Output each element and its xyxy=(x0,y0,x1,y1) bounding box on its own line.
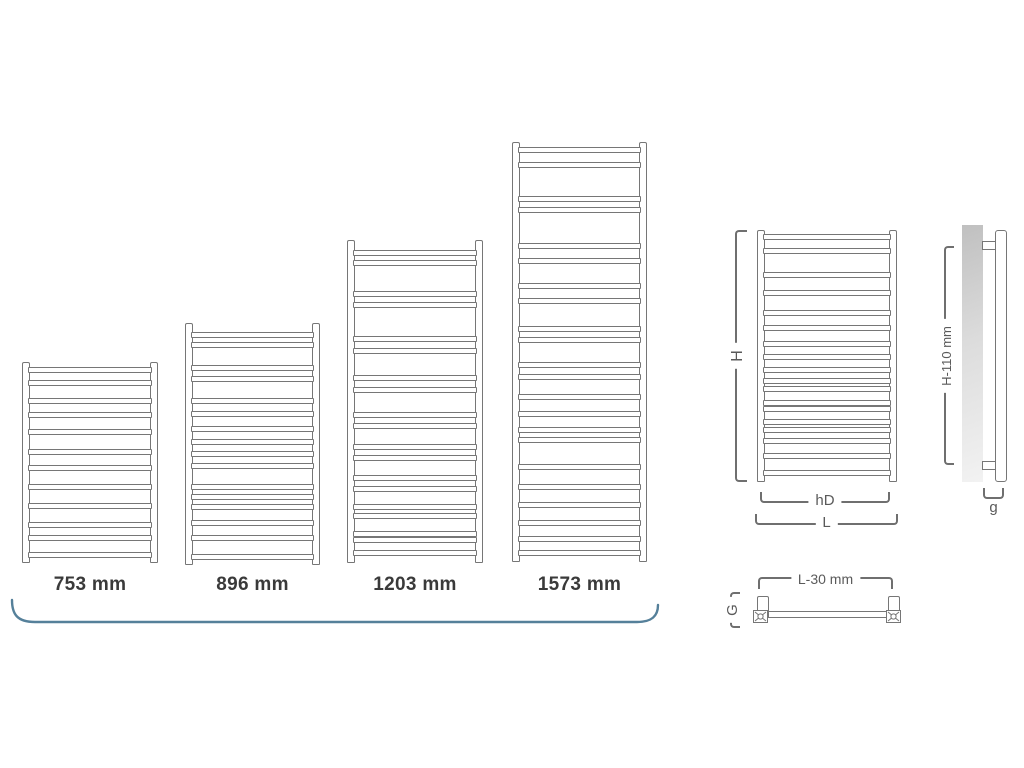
radiator-rung xyxy=(518,484,641,490)
mount-cross-icon xyxy=(754,611,767,622)
radiator-rung xyxy=(28,503,152,509)
radiator-rung xyxy=(518,550,641,556)
radiator-rung xyxy=(518,502,641,508)
radiator-rung xyxy=(763,367,891,373)
radiator-rung xyxy=(763,325,891,331)
radiator-rung xyxy=(518,520,641,526)
radiator-rung xyxy=(353,250,477,256)
radiator-rung xyxy=(191,398,314,404)
radiator-rung xyxy=(763,470,891,476)
radiator-rung xyxy=(763,419,891,425)
radiator-rung xyxy=(353,455,477,461)
top-view-mount-bracket-left xyxy=(753,610,768,623)
radiator-rung xyxy=(28,522,152,528)
radiator-rung xyxy=(191,332,314,338)
radiator-rung xyxy=(353,513,477,519)
radiator-rung xyxy=(518,374,641,380)
radiator-rung xyxy=(518,427,641,433)
top-view-crossbar xyxy=(768,611,889,618)
radiator-rung xyxy=(28,412,152,418)
radiator-rung xyxy=(518,464,641,470)
radiator-rung xyxy=(518,394,641,400)
radiator-rung xyxy=(763,427,891,433)
radiator-size-variant xyxy=(347,240,483,563)
dimension-inner-width-bracket: hD xyxy=(760,492,890,503)
radiator-rung xyxy=(28,398,152,404)
mount-cross-icon xyxy=(887,611,900,622)
side-view-collector-tube xyxy=(995,230,1007,482)
radiator-rung xyxy=(518,147,641,153)
radiator-rung xyxy=(191,365,314,371)
size-group-underline-curve xyxy=(8,595,668,631)
radiator-rung xyxy=(28,552,152,558)
dimension-top-depth-label: G xyxy=(725,597,741,623)
radiator-rail-right xyxy=(150,362,158,563)
radiator-height-label: 1203 mm xyxy=(373,574,456,596)
radiator-rung xyxy=(353,537,477,543)
dimension-side-depth-bracket: g xyxy=(983,488,1004,499)
radiator-rail-left xyxy=(22,362,30,563)
dimension-height-bracket: H xyxy=(735,230,747,482)
radiator-size-variant xyxy=(512,142,647,562)
radiator-rung xyxy=(191,463,314,469)
radiator-rung xyxy=(763,234,891,240)
radiator-rung xyxy=(763,310,891,316)
radiator-rung xyxy=(353,423,477,429)
radiator-height-label: 896 mm xyxy=(216,574,289,596)
radiator-rung xyxy=(28,535,152,541)
dimension-side-height-bracket: H-110 mm xyxy=(944,246,954,465)
radiator-rung xyxy=(191,484,314,490)
radiator-rung xyxy=(191,426,314,432)
dimension-top-width-label: L-30 mm xyxy=(791,571,860,587)
radiator-rung xyxy=(518,362,641,368)
dimension-top-width-bracket: L-30 mm xyxy=(758,577,893,589)
dimension-height-label: H xyxy=(730,343,746,369)
radiator-rung xyxy=(28,380,152,386)
radiator-rung xyxy=(353,375,477,381)
radiator-rung xyxy=(518,536,641,542)
radiator-height-label: 753 mm xyxy=(54,574,127,596)
dimension-top-depth-bracket: G xyxy=(730,592,740,628)
radiator-rung xyxy=(353,291,477,297)
radiator-rung xyxy=(518,258,641,264)
dimension-side-depth-label: g xyxy=(989,500,997,516)
radiator-rung xyxy=(353,302,477,308)
radiator-rung xyxy=(28,367,152,373)
radiator-rung xyxy=(518,437,641,443)
radiator-rung xyxy=(353,387,477,393)
radiator-rung xyxy=(28,484,152,490)
dimension-overall-width-bracket: L xyxy=(755,514,898,525)
radiator-rung xyxy=(763,354,891,360)
radiator-rung xyxy=(28,429,152,435)
dimension-side-height-label: H-110 mm xyxy=(939,319,955,393)
radiator-rung xyxy=(353,475,477,481)
radiator-rung xyxy=(191,520,314,526)
radiator-rung xyxy=(763,341,891,347)
radiator-rung xyxy=(518,337,641,343)
radiator-rung xyxy=(763,248,891,254)
radiator-rung xyxy=(191,439,314,445)
radiator-rail-left xyxy=(512,142,520,562)
radiator-rung xyxy=(353,336,477,342)
radiator-rail-right xyxy=(639,142,647,562)
radiator-height-label: 1573 mm xyxy=(538,574,621,596)
radiator-rung xyxy=(353,444,477,450)
dimension-overall-width-label: L xyxy=(815,515,837,531)
top-view-mount-bracket-right xyxy=(886,610,901,623)
radiator-rung xyxy=(191,494,314,500)
radiator-rung xyxy=(518,196,641,202)
radiator-size-variant xyxy=(185,323,320,565)
radiator-rung xyxy=(191,554,314,560)
radiator-rung xyxy=(191,535,314,541)
radiator-rung xyxy=(191,342,314,348)
radiator-dimension-diagram: 753 mm896 mm1203 mm1573 mm H hD L H-110 … xyxy=(0,0,1024,768)
radiator-rung xyxy=(763,453,891,459)
radiator-rung xyxy=(518,283,641,289)
radiator-rung xyxy=(518,411,641,417)
radiator-rung xyxy=(353,260,477,266)
radiator-rung xyxy=(28,465,152,471)
radiator-rung xyxy=(353,412,477,418)
side-view-panel xyxy=(962,225,983,482)
radiator-rung xyxy=(353,348,477,354)
radiator-rung xyxy=(763,272,891,278)
radiator-rung xyxy=(763,290,891,296)
radiator-rung xyxy=(28,449,152,455)
radiator-rung xyxy=(518,243,641,249)
front-view-radiator xyxy=(757,230,897,482)
radiator-rung xyxy=(763,378,891,384)
radiator-rung xyxy=(763,406,891,412)
radiator-rung xyxy=(353,504,477,510)
radiator-rung xyxy=(518,298,641,304)
radiator-rung xyxy=(353,486,477,492)
dimension-inner-width-label: hD xyxy=(808,493,841,509)
radiator-rung xyxy=(191,504,314,510)
radiator-rung xyxy=(353,550,477,556)
radiator-rung xyxy=(518,326,641,332)
radiator-rung xyxy=(191,376,314,382)
radiator-size-variant xyxy=(22,362,158,563)
radiator-rung xyxy=(191,411,314,417)
radiator-rung xyxy=(763,386,891,392)
radiator-rung xyxy=(191,451,314,457)
radiator-rung xyxy=(518,162,641,168)
radiator-rung xyxy=(763,438,891,444)
radiator-rung xyxy=(518,207,641,213)
